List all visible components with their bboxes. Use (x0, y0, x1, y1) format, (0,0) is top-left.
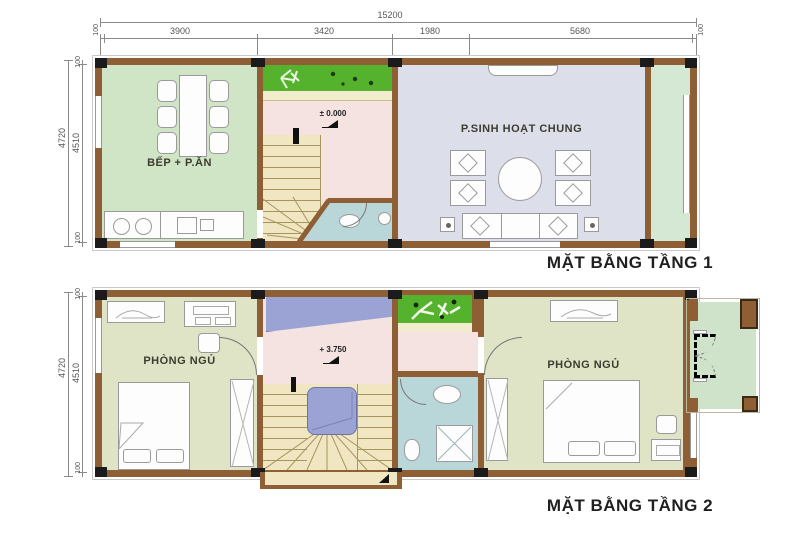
bed (118, 382, 190, 470)
column-block (685, 238, 697, 248)
window (490, 241, 560, 248)
living-label: P.SINH HOẠT CHUNG (398, 123, 645, 135)
porch-door (683, 95, 690, 213)
cushion-icon (563, 183, 583, 203)
bathroom-floor2 (398, 377, 478, 470)
level-flag-icon (329, 356, 339, 363)
dim-tick (64, 292, 73, 293)
door-arc-icon (484, 337, 522, 375)
wardrobe-x-icon (231, 380, 255, 468)
stair-landing (307, 387, 357, 435)
sofa-divider (501, 214, 502, 239)
level-flag-bar (323, 363, 339, 364)
column-block (474, 290, 488, 299)
floor2-title: MẶT BẰNG TẦNG 2 (500, 496, 760, 516)
blanket-fold-icon (544, 381, 574, 411)
window (690, 410, 697, 458)
dim-f1-4720: 4720 (58, 128, 67, 148)
floor2-plan: PHÒNG NGỦ + 3.750 (95, 290, 697, 477)
level-flag-icon (328, 120, 338, 127)
floorplan-canvas: 15200 100 3900 3420 1980 5680 100 4720 4… (0, 0, 800, 533)
sink-icon (177, 217, 197, 234)
stair-newel (293, 128, 299, 144)
door-arc-icon (400, 379, 426, 405)
kitchen-room: BẾP + P.ĂN (102, 65, 257, 241)
dim-ext (469, 42, 470, 56)
sink-icon (200, 219, 214, 231)
entry-door-mark (379, 474, 389, 483)
console-table (488, 65, 558, 76)
dim-ext (696, 42, 697, 56)
dim-top-end-right: 100 (698, 24, 705, 36)
column-block (251, 239, 265, 248)
wall-bathroom-slant (295, 198, 335, 244)
side-table (584, 217, 599, 232)
desk (651, 439, 681, 461)
dim-top-total: 15200 (290, 11, 490, 20)
dim-f2-4510: 4510 (72, 363, 81, 383)
armchair (450, 150, 486, 176)
balcony-column (689, 299, 698, 321)
armchair (450, 180, 486, 206)
dresser-detail (551, 301, 619, 323)
column-block (388, 58, 402, 67)
armchair (555, 150, 591, 176)
column-block (95, 467, 107, 477)
stove-burner-icon (135, 218, 152, 235)
level-marker-f2: + 3.750 (298, 345, 368, 354)
door-arc-icon (694, 334, 716, 356)
dim-tick (104, 34, 105, 43)
column-block (474, 468, 488, 477)
dim-tick (100, 18, 101, 27)
dim-f2-outer-line (68, 292, 69, 477)
dim-f1-100-top: 100 (75, 56, 82, 68)
dim-tick (64, 476, 73, 477)
dim-f2-4720: 4720 (58, 358, 67, 378)
floor1-plan: BẾP + P.ĂN ± (95, 58, 697, 248)
cushion-icon (548, 216, 568, 236)
landing-hall (398, 332, 478, 371)
kitchen-counter (104, 211, 244, 239)
dim-tick (696, 18, 697, 27)
side-table-dot (590, 223, 595, 228)
stair-newel (291, 377, 296, 392)
column-block (640, 58, 654, 67)
cushion-icon (458, 183, 478, 203)
desk-item (195, 317, 211, 325)
balcony-column (740, 299, 758, 329)
counter-divider (160, 212, 161, 239)
bedroom-left-room: PHÒNG NGỦ (102, 297, 257, 470)
living-room: P.SINH HOẠT CHUNG (398, 65, 645, 241)
chair-icon (656, 415, 677, 434)
dim-f2-inner-line (82, 292, 83, 477)
garden-trim (263, 91, 392, 101)
porch (651, 65, 690, 241)
cushion-icon (563, 153, 583, 173)
dresser (550, 300, 618, 322)
basin-icon (433, 385, 461, 404)
balcony-column (689, 398, 698, 412)
chair-icon (157, 106, 177, 128)
door-arc-icon (694, 356, 716, 378)
bed (543, 380, 640, 463)
armchair (555, 180, 591, 206)
pillow-icon (568, 441, 600, 456)
dresser-detail (108, 302, 166, 324)
column-block (640, 239, 654, 248)
dim-f2-100-bottom: 100 (75, 462, 82, 474)
bedroom-right-room: PHÒNG NGỦ (484, 297, 683, 470)
dim-seg-5680: 5680 (530, 27, 630, 36)
desk (184, 301, 236, 327)
dim-f1-inner-line (82, 60, 83, 247)
stove-burner-icon (113, 218, 130, 235)
column-block (251, 290, 265, 299)
door-arc-icon (219, 337, 257, 375)
dim-seg-3900: 3900 (130, 27, 230, 36)
chair-icon (157, 132, 177, 154)
window (95, 318, 102, 373)
wardrobe-x-icon (487, 379, 509, 462)
dim-f1-4510: 4510 (72, 133, 81, 153)
dim-top-seg-line (100, 38, 697, 39)
column-block (388, 290, 402, 299)
dim-tick (64, 60, 73, 61)
balcony (690, 302, 756, 409)
pillow-icon (604, 441, 636, 456)
wardrobe (486, 378, 508, 461)
column-block (95, 58, 107, 68)
dim-top-end-left: 100 (93, 24, 100, 36)
dining-table (179, 75, 207, 157)
garden-bed (263, 65, 392, 91)
dim-ext (257, 42, 258, 56)
desk-item (656, 445, 680, 456)
wardrobe (230, 379, 254, 467)
plants-icon (398, 295, 472, 323)
window (120, 241, 175, 248)
pillow-icon (123, 449, 151, 463)
column-block (95, 290, 107, 300)
dim-f1-100-bottom: 100 (75, 232, 82, 244)
column-block (685, 58, 697, 68)
hall-floor2: + 3.750 (263, 297, 392, 470)
kitchen-label: BẾP + P.ĂN (102, 157, 257, 169)
dim-tick (64, 246, 73, 247)
floor1-title: MẶT BẰNG TẦNG 1 (500, 253, 760, 273)
column-block (685, 467, 697, 477)
dim-tick (692, 34, 693, 43)
dim-ext (100, 42, 101, 56)
chair-icon (209, 80, 229, 102)
blanket-fold-icon (119, 421, 145, 449)
dim-f2-100-top: 100 (75, 288, 82, 300)
dim-ext (392, 42, 393, 56)
sofa (462, 213, 578, 239)
pillow-icon (156, 449, 184, 463)
void-skylight (266, 297, 396, 332)
chair-icon (198, 333, 220, 353)
balcony-column (742, 396, 758, 412)
shower-x-icon (437, 426, 472, 461)
chair-icon (157, 80, 177, 102)
window (95, 96, 102, 148)
column-block (95, 238, 107, 248)
coffee-table (498, 157, 542, 201)
dim-seg-3420: 3420 (274, 27, 374, 36)
column-block (388, 239, 402, 248)
chair-icon (209, 106, 229, 128)
dim-top-total-line (100, 22, 697, 23)
shower-tray (436, 425, 473, 462)
level-marker-f1: ± 0.000 (303, 109, 363, 118)
toilet-icon (404, 439, 420, 461)
desk-item (215, 317, 231, 325)
balcony-door-leaf (693, 378, 707, 382)
sofa-divider (539, 214, 540, 239)
column-block (251, 58, 265, 67)
plants-icon (263, 65, 392, 91)
basin-icon (378, 212, 391, 225)
cushion-icon (470, 216, 490, 236)
stair-bay-extension (260, 472, 402, 489)
cushion-icon (458, 153, 478, 173)
side-table-dot (446, 223, 451, 228)
dresser (107, 301, 165, 323)
side-table (440, 217, 455, 232)
desk-item (193, 306, 229, 315)
dim-f1-outer-line (68, 60, 69, 247)
landing-fold-icon (308, 388, 356, 434)
chair-icon (209, 132, 229, 154)
garden-box-f2 (398, 295, 472, 323)
level-flag-bar (322, 127, 338, 128)
dim-seg-1980: 1980 (380, 27, 480, 36)
